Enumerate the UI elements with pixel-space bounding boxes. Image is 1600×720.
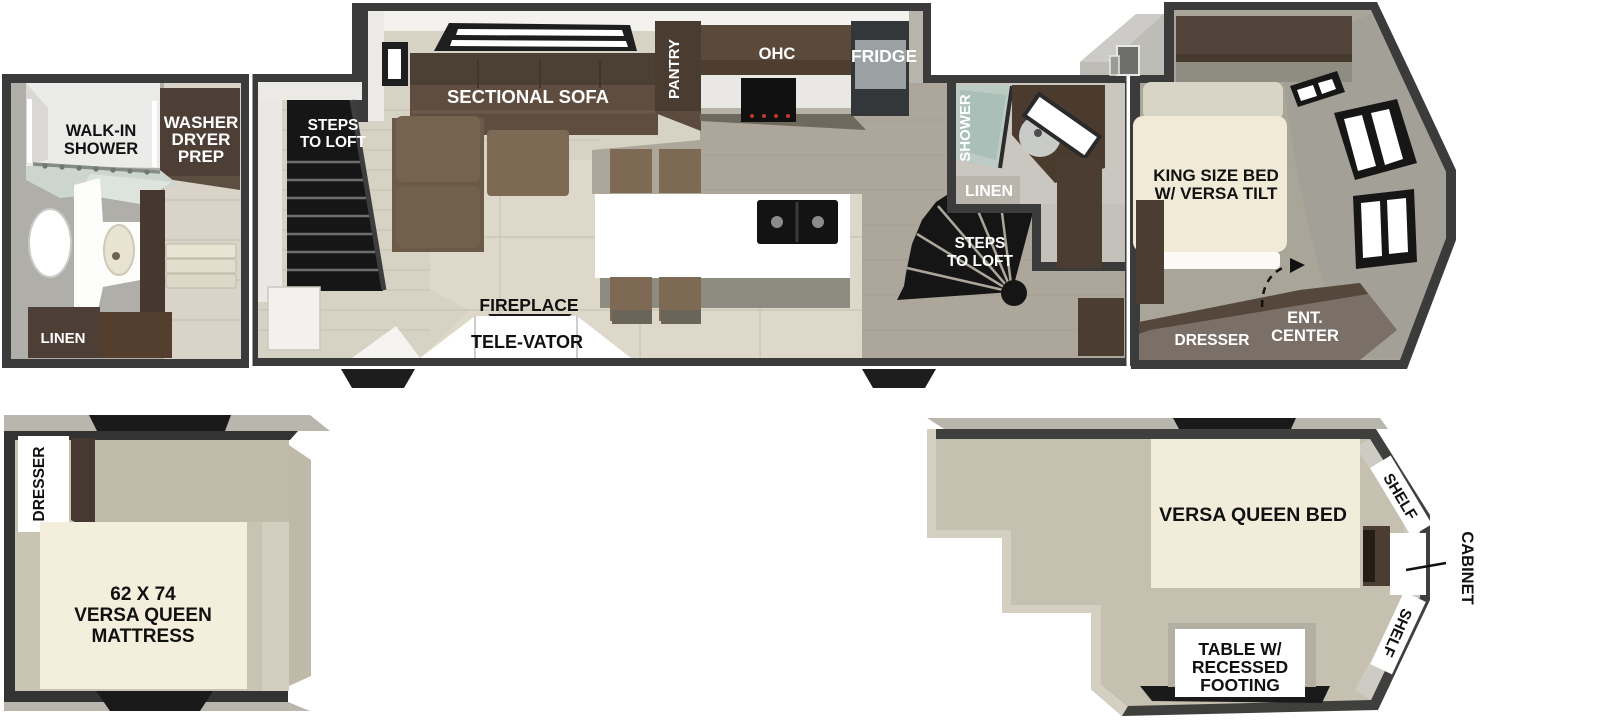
svg-text:OHC: OHC (759, 45, 796, 63)
svg-text:KING SIZE BED: KING SIZE BED (1153, 166, 1279, 185)
svg-text:62 X 74: 62 X 74 (110, 584, 176, 605)
svg-text:DRESSER: DRESSER (1175, 332, 1250, 349)
svg-text:SHOWER: SHOWER (957, 94, 974, 162)
svg-text:FRIDGE: FRIDGE (851, 46, 917, 66)
svg-text:LINEN: LINEN (965, 183, 1013, 200)
svg-text:SHOWER: SHOWER (64, 140, 138, 158)
svg-text:TELE-VATOR: TELE-VATOR (471, 332, 583, 352)
svg-text:W/ VERSA TILT: W/ VERSA TILT (1155, 184, 1278, 203)
svg-text:VERSA QUEEN BED: VERSA QUEEN BED (1159, 504, 1347, 526)
svg-text:CENTER: CENTER (1271, 327, 1339, 345)
svg-text:WALK-IN: WALK-IN (66, 122, 137, 140)
svg-text:TO LOFT: TO LOFT (300, 134, 367, 151)
svg-text:SECTIONAL SOFA: SECTIONAL SOFA (447, 86, 609, 107)
svg-text:FOOTING: FOOTING (1200, 675, 1280, 695)
svg-text:TO LOFT: TO LOFT (947, 253, 1014, 270)
svg-text:DRESSER: DRESSER (31, 447, 48, 522)
svg-text:VERSA QUEEN: VERSA QUEEN (74, 605, 212, 626)
svg-text:PANTRY: PANTRY (666, 39, 683, 99)
svg-text:RECESSED: RECESSED (1192, 657, 1288, 677)
svg-text:FIREPLACE: FIREPLACE (479, 295, 578, 315)
svg-text:ENT.: ENT. (1287, 309, 1323, 327)
svg-text:STEPS: STEPS (308, 117, 359, 134)
svg-text:TABLE W/: TABLE W/ (1198, 639, 1281, 659)
svg-text:PREP: PREP (178, 147, 224, 166)
svg-text:LINEN: LINEN (41, 330, 86, 347)
svg-text:CABINET: CABINET (1458, 531, 1476, 604)
svg-text:MATTRESS: MATTRESS (91, 626, 194, 647)
svg-text:STEPS: STEPS (955, 235, 1006, 252)
